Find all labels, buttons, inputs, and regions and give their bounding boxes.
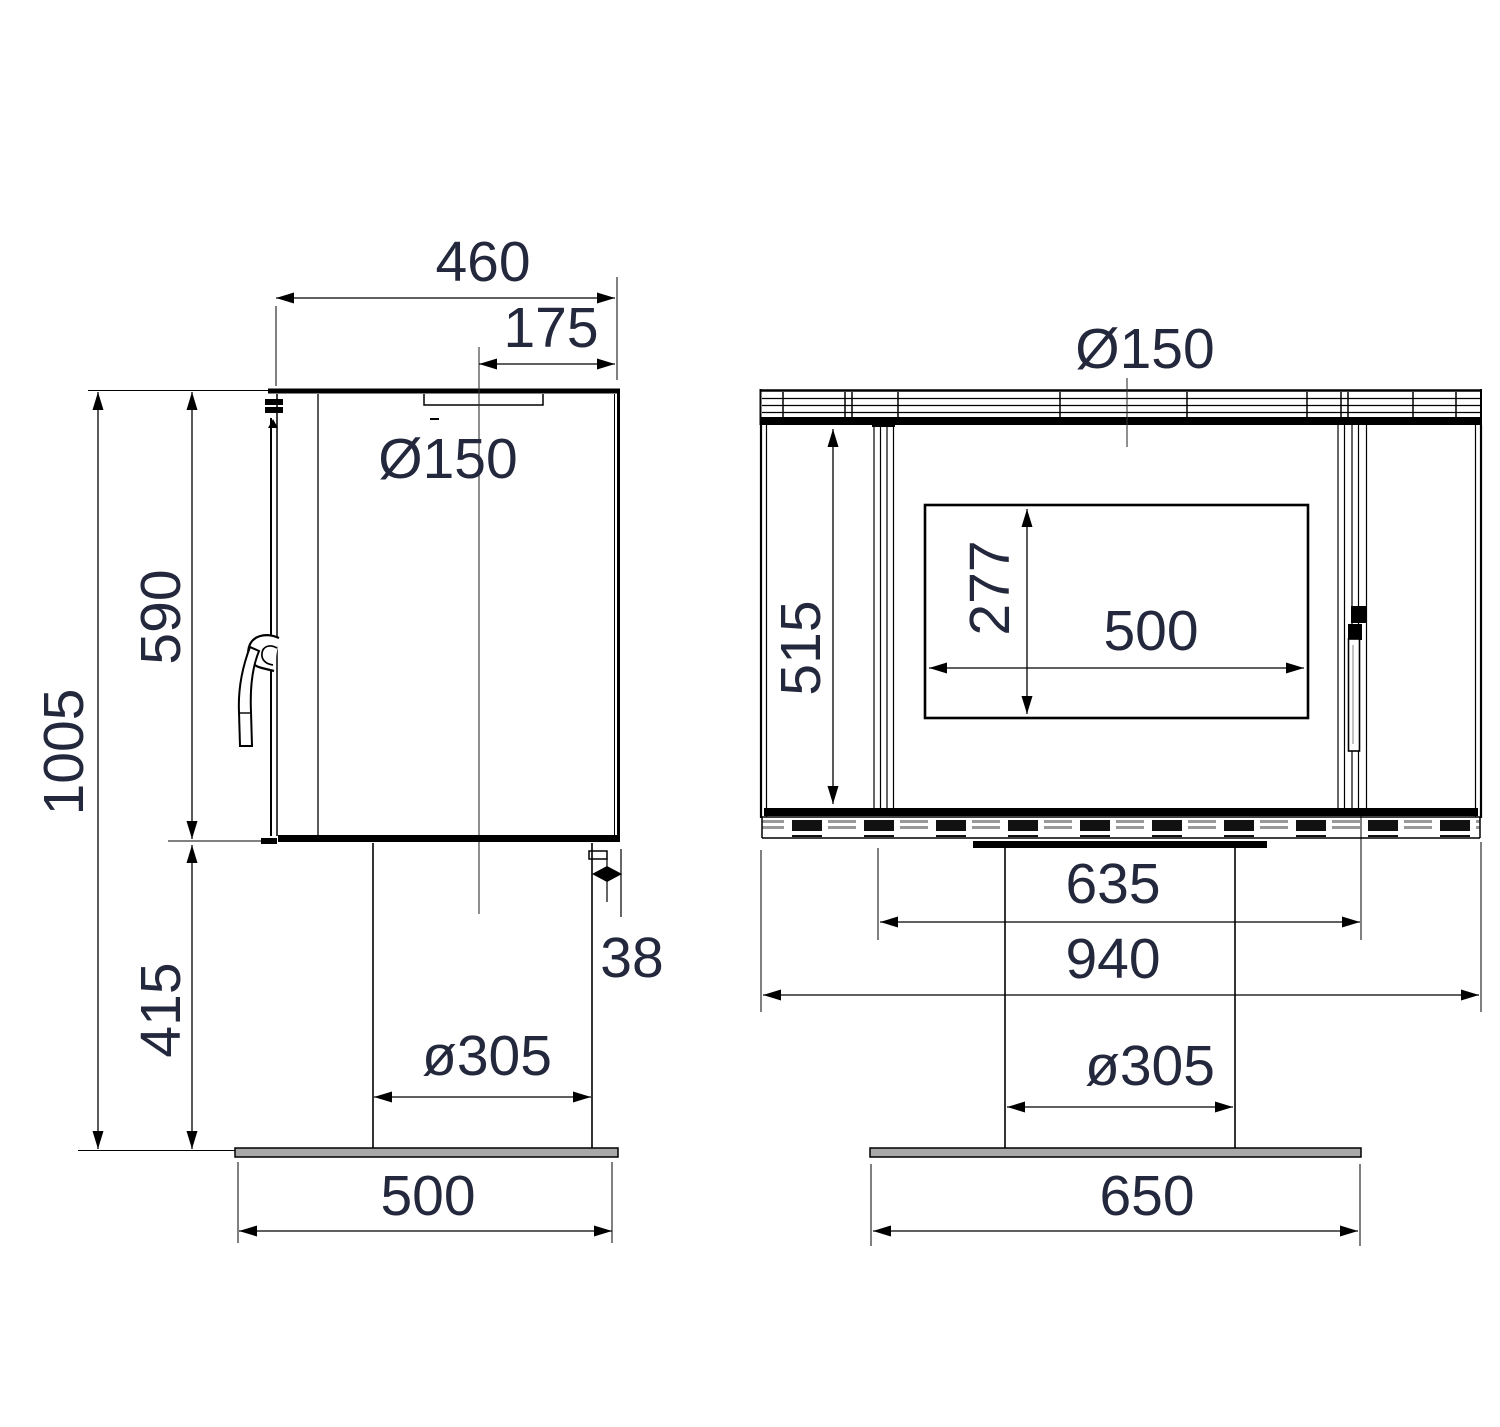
dim-label-width: 460	[435, 230, 530, 294]
side-hinge-tick-2	[265, 407, 283, 413]
dim-label-body-height: 590	[129, 569, 193, 664]
dim-rear-gap: 38	[592, 849, 664, 990]
dim-pedestal-height: 415	[129, 845, 198, 1149]
dim-base-width-side: 500	[238, 1162, 612, 1243]
dim-label-flue-offset: 175	[503, 296, 598, 360]
dim-label-body-width: 940	[1065, 927, 1160, 991]
dim-label-pedestal-height: 415	[129, 962, 193, 1057]
handle-lever	[239, 647, 259, 746]
dim-firebox-height: 515	[769, 429, 839, 804]
front-plinth-vents	[762, 820, 1480, 837]
dim-pedestal-diameter-side: ø305	[374, 1024, 591, 1103]
dim-label-glass-width: 500	[1103, 599, 1198, 663]
dim-flue-offset: 175	[479, 296, 615, 370]
dim-label-base-width-side: 500	[380, 1164, 475, 1228]
dim-label-pedestal-diameter-side: ø305	[422, 1024, 552, 1088]
side-view: 1005 590 415 460	[32, 230, 664, 1243]
front-view: Ø150	[760, 317, 1482, 1246]
dim-label-flue-diameter-side: Ø150	[378, 427, 517, 491]
front-left-column-tick	[872, 421, 895, 427]
dim-label-firebox-height: 515	[769, 600, 833, 695]
dim-body-height: 590	[129, 392, 198, 839]
side-body-top-plate	[268, 389, 620, 394]
dim-label-inner-width: 635	[1065, 852, 1160, 916]
front-bottom-plate	[764, 808, 1478, 816]
side-base-plate	[235, 1148, 618, 1157]
dim-label-flue-diameter-front: Ø150	[1075, 317, 1214, 381]
dim-total-height: 1005	[32, 392, 104, 1149]
side-hinge-tick-1	[265, 399, 283, 405]
dim-pedestal-diameter-front: ø305	[1007, 1034, 1233, 1113]
dim-base-width-front: 650	[871, 1164, 1360, 1246]
gap-diamond-arrow	[592, 866, 622, 882]
front-latch-block-upper	[1351, 606, 1367, 623]
side-body-bottom-plate	[278, 835, 620, 842]
dim-label-glass-height: 277	[958, 540, 1022, 635]
front-pedestal-flange	[973, 841, 1267, 848]
front-top-band	[760, 389, 1482, 425]
front-band-bottom-bar	[760, 417, 1482, 425]
front-handle-bar	[1349, 639, 1360, 751]
dim-label-total-height: 1005	[32, 689, 96, 816]
technical-drawing: 1005 590 415 460	[0, 0, 1500, 1427]
front-base-plate	[870, 1148, 1361, 1157]
front-left-door-column	[874, 425, 894, 810]
side-door-handle	[239, 635, 279, 746]
dim-label-pedestal-diameter-front: ø305	[1085, 1034, 1215, 1098]
front-latch-block-lower	[1348, 624, 1362, 640]
dim-label-base-width-front: 650	[1099, 1164, 1194, 1228]
dim-label-rear-gap: 38	[600, 926, 663, 990]
side-flue-collar-notch	[424, 394, 543, 405]
front-band-dividers	[783, 392, 1456, 417]
